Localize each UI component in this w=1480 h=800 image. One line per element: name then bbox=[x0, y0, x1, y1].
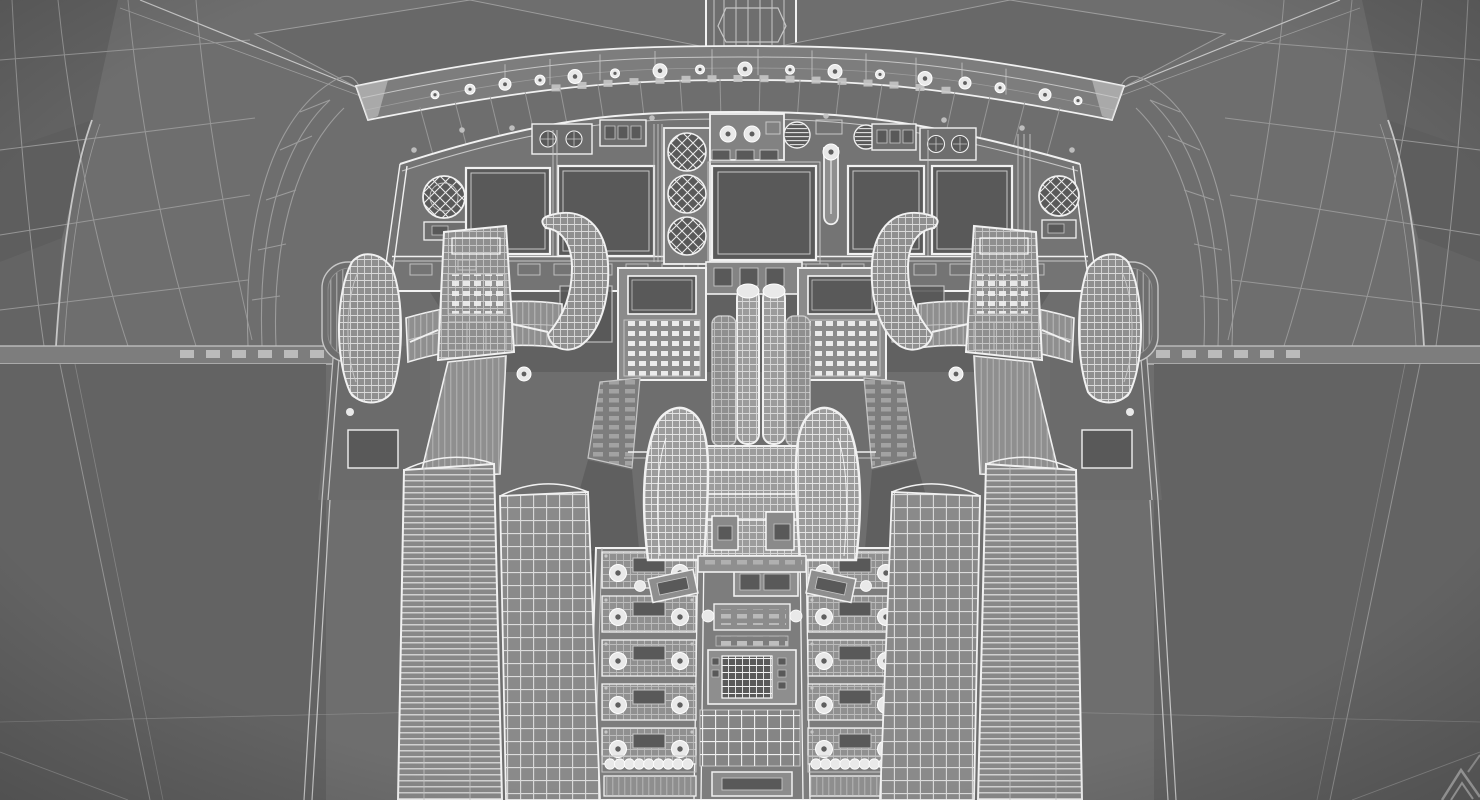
windshield-center-post bbox=[706, 0, 796, 50]
ceiling bbox=[706, 0, 796, 50]
pedestal-grid-plate bbox=[700, 710, 800, 766]
upper-center-display bbox=[708, 162, 820, 264]
thrust-lever-right bbox=[763, 284, 785, 444]
center-annunciator-panel bbox=[710, 114, 784, 160]
standby-compass-ball bbox=[784, 122, 810, 148]
quadrant-base bbox=[700, 446, 804, 556]
render-stage bbox=[0, 0, 1480, 800]
fo-indicator-box bbox=[872, 124, 916, 150]
wireframe-viewport[interactable] bbox=[0, 0, 1480, 800]
captain-clock-box bbox=[532, 124, 592, 154]
standby-gauge-stack bbox=[664, 128, 710, 264]
quadrant-housing-left bbox=[644, 408, 708, 560]
standby-gauge-right bbox=[1039, 176, 1079, 238]
transponder-keypad bbox=[708, 650, 796, 704]
thrust-lever-left bbox=[737, 284, 759, 444]
left-cdu bbox=[618, 268, 706, 380]
quadrant-housing-right bbox=[796, 408, 860, 560]
landing-gear-lever bbox=[823, 144, 839, 224]
pedestal-bottom-panel bbox=[712, 772, 792, 796]
captain-indicator-box bbox=[600, 120, 646, 146]
